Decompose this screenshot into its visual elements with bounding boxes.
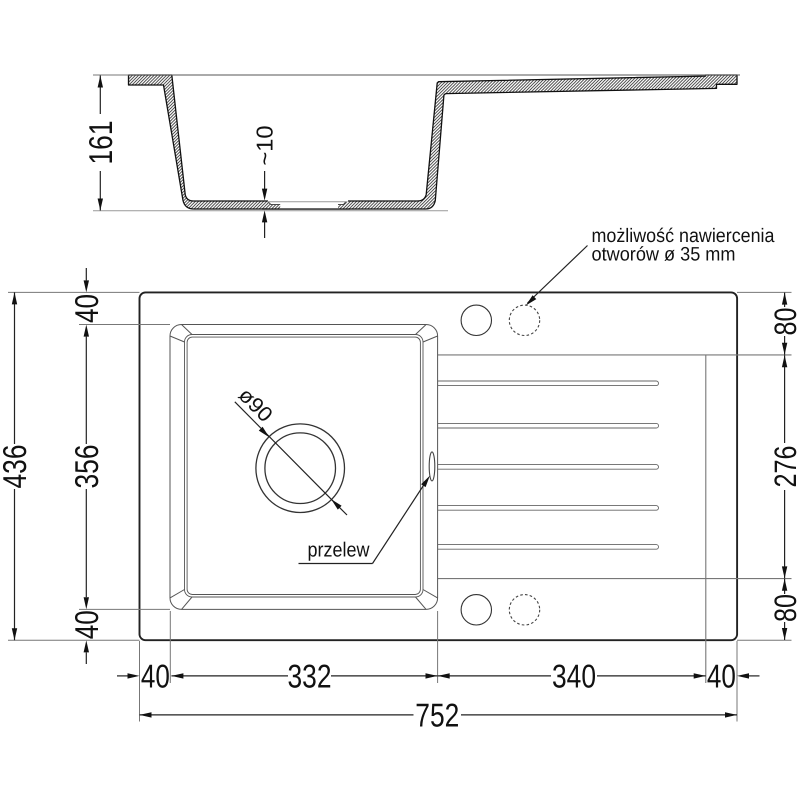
svg-text:161: 161: [82, 121, 119, 165]
svg-text:356: 356: [68, 445, 105, 489]
svg-text:436: 436: [0, 445, 33, 489]
svg-text:332: 332: [288, 657, 332, 694]
svg-text:przelew: przelew: [308, 539, 370, 562]
svg-text:40: 40: [68, 610, 105, 639]
svg-text:80: 80: [768, 308, 800, 336]
svg-text:40: 40: [68, 294, 105, 323]
svg-text:340: 340: [552, 657, 596, 694]
svg-text:40: 40: [707, 657, 736, 694]
svg-text:276: 276: [768, 446, 800, 488]
svg-text:~10: ~10: [252, 126, 278, 166]
svg-text:80: 80: [768, 594, 800, 622]
svg-text:otworów ø 35 mm: otworów ø 35 mm: [592, 244, 736, 266]
svg-text:40: 40: [141, 657, 170, 694]
svg-text:752: 752: [415, 696, 459, 733]
